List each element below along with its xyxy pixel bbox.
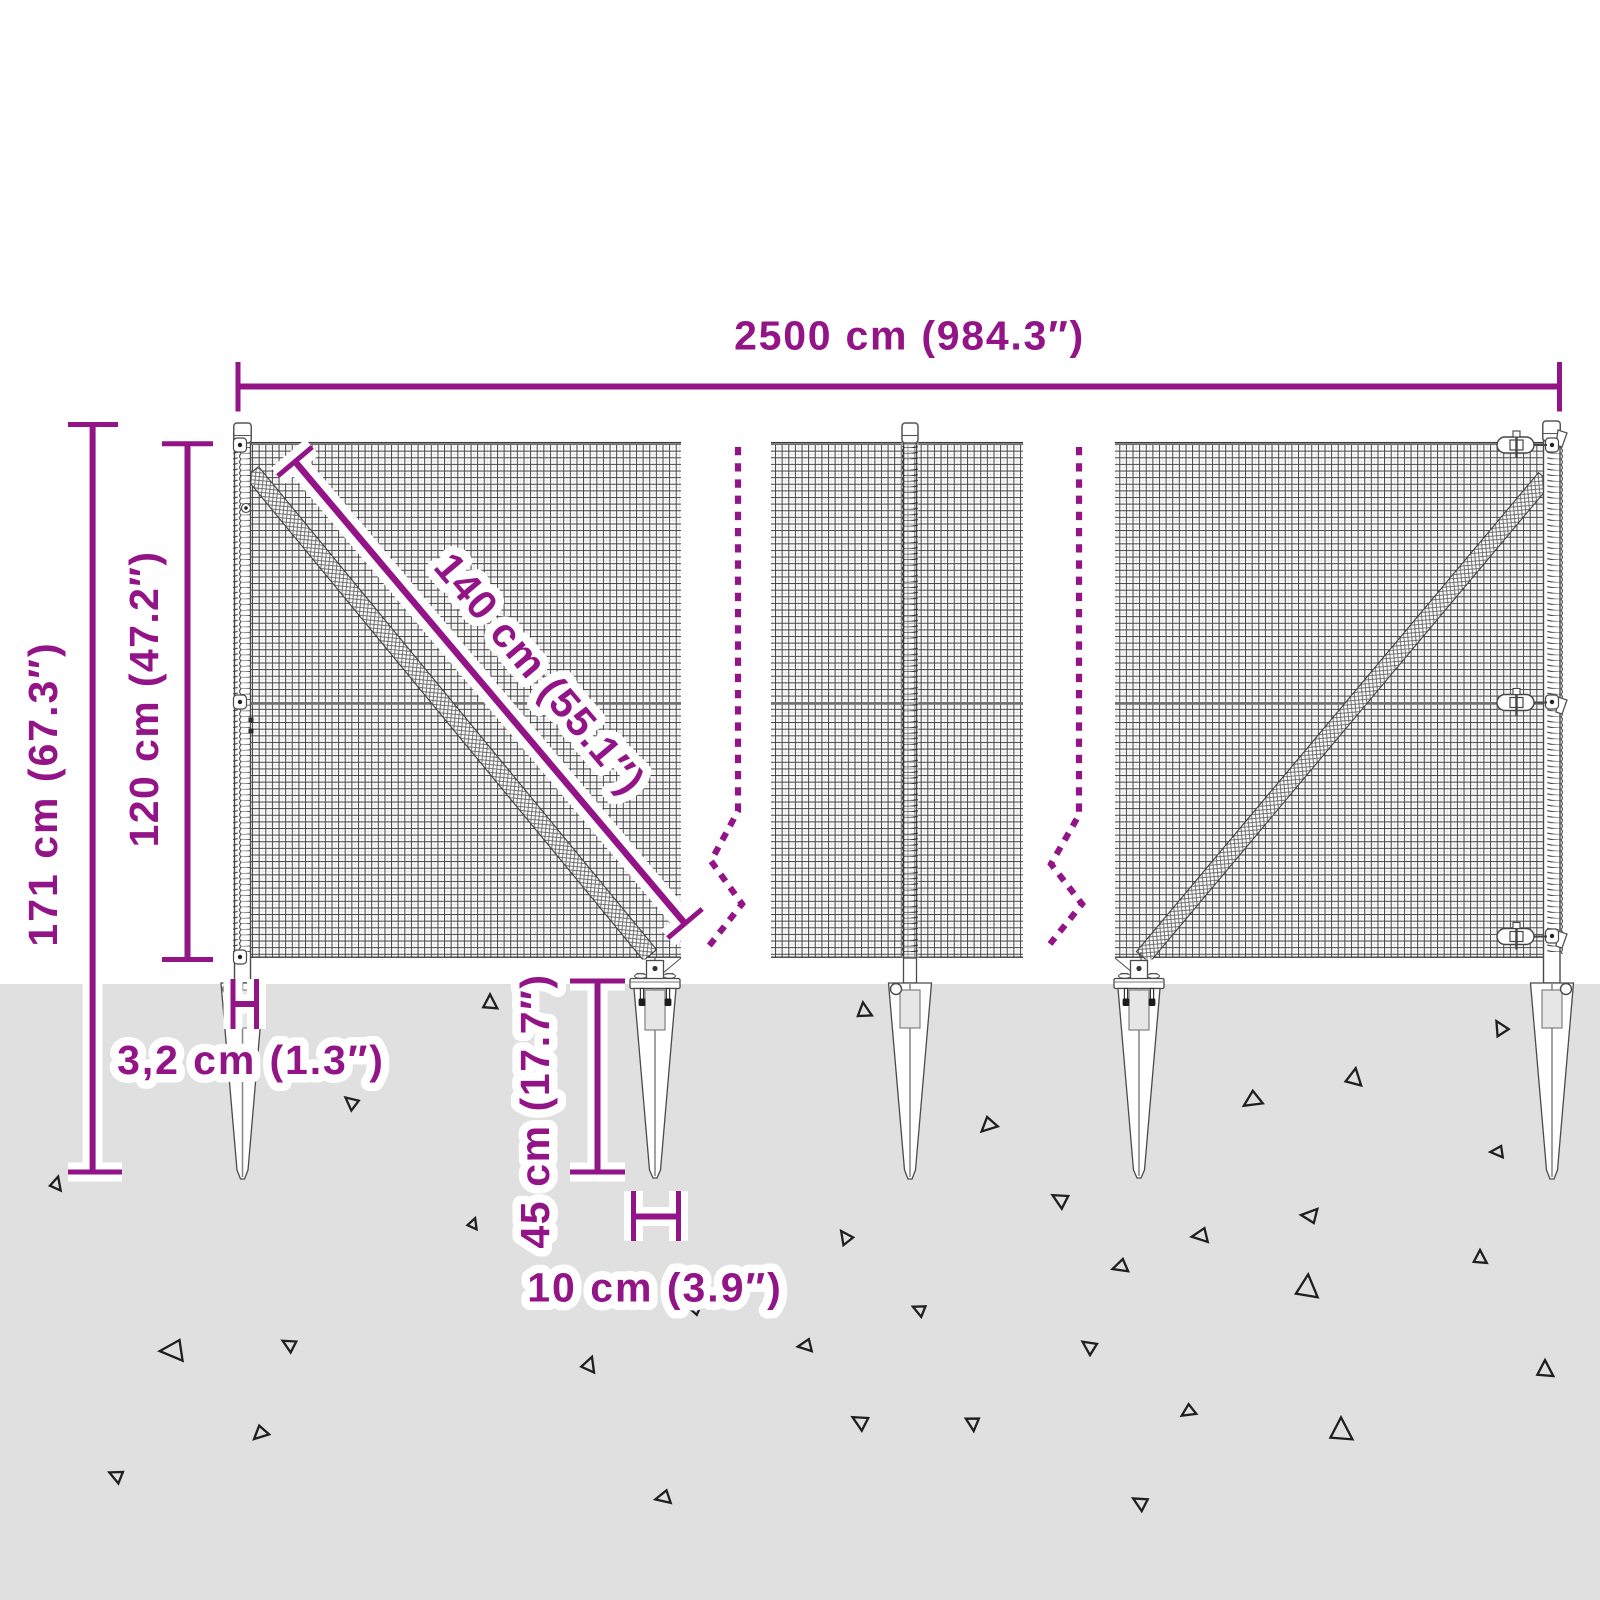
svg-text:120 cm (47.2″): 120 cm (47.2″) <box>121 551 167 848</box>
svg-text:171 cm (67.3″): 171 cm (67.3″) <box>20 641 66 946</box>
svg-text:45 cm (17.7″): 45 cm (17.7″) <box>512 973 558 1248</box>
svg-text:3,2 cm (1.3″): 3,2 cm (1.3″) <box>117 1037 385 1083</box>
svg-text:2500 cm (984.3″): 2500 cm (984.3″) <box>734 313 1085 359</box>
svg-text:10 cm (3.9″): 10 cm (3.9″) <box>527 1265 783 1311</box>
